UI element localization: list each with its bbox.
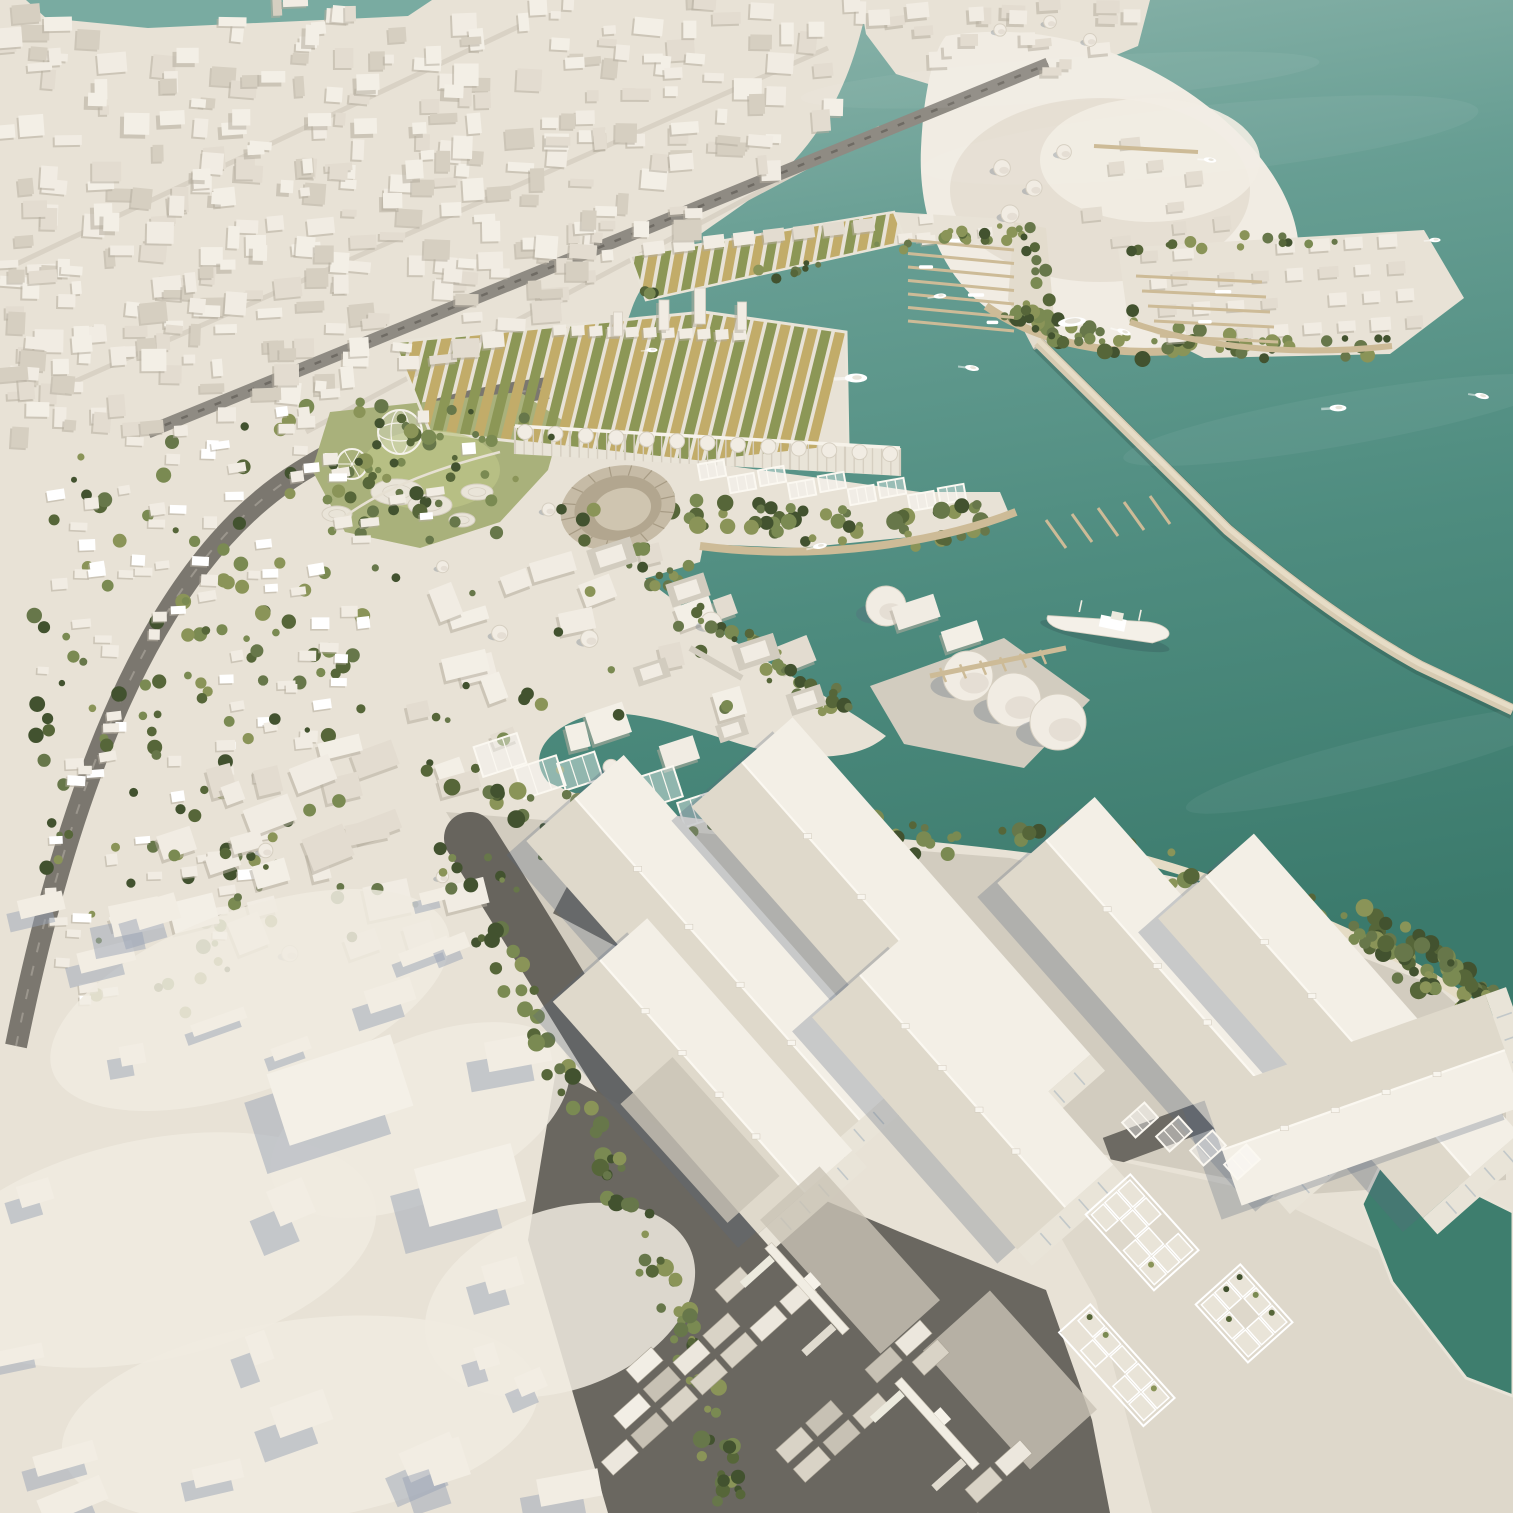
tree <box>512 476 518 482</box>
building-block <box>518 13 530 32</box>
building-block <box>335 48 354 68</box>
building-block <box>18 114 44 137</box>
tree <box>147 727 157 737</box>
building-block <box>589 326 603 337</box>
building-block <box>1098 15 1118 24</box>
tree <box>509 782 527 800</box>
tree <box>469 590 475 596</box>
building-block <box>1167 201 1184 212</box>
tree <box>1084 333 1095 344</box>
building-block <box>674 219 702 240</box>
tree <box>639 1254 652 1267</box>
building-block <box>219 674 233 683</box>
tree <box>1392 972 1403 983</box>
building-block <box>72 335 93 353</box>
silo <box>670 434 685 449</box>
tank-shading <box>998 29 1005 34</box>
tree <box>485 494 497 506</box>
building-block <box>140 420 164 435</box>
building-block <box>64 420 76 431</box>
building-block <box>200 383 224 392</box>
building-block <box>671 121 699 135</box>
building-block <box>353 535 371 543</box>
building-block <box>23 200 47 217</box>
tree <box>499 877 505 883</box>
building-block <box>697 329 711 340</box>
tree <box>345 491 357 503</box>
tree <box>200 786 208 794</box>
tree <box>697 1451 707 1461</box>
building-block <box>421 99 439 113</box>
building-block <box>49 836 63 844</box>
tree <box>593 1116 609 1132</box>
tree <box>507 945 520 958</box>
tree <box>197 693 208 704</box>
building-block <box>1042 67 1061 75</box>
tree <box>444 779 461 796</box>
building-block <box>153 612 167 622</box>
tree <box>154 711 162 719</box>
building-block <box>634 221 650 237</box>
building-block <box>92 162 121 182</box>
tree <box>656 1303 666 1313</box>
building-block <box>571 325 585 336</box>
building-block <box>160 79 177 94</box>
roof-vent <box>641 1008 649 1013</box>
roof-vent <box>685 924 693 929</box>
tree <box>490 962 502 974</box>
tree <box>585 586 596 597</box>
building-block <box>148 519 165 527</box>
building-block <box>257 307 282 318</box>
tree <box>781 514 797 530</box>
tree <box>723 1440 736 1453</box>
scene-canvas <box>0 0 1513 1513</box>
tree <box>736 1489 746 1499</box>
tree <box>515 957 530 972</box>
tree <box>436 433 444 441</box>
tree <box>498 985 511 998</box>
tree <box>1021 305 1031 315</box>
building-block <box>603 25 616 34</box>
tree <box>332 794 346 808</box>
tree <box>1259 353 1269 363</box>
tree <box>636 1269 644 1277</box>
building-block <box>25 336 48 350</box>
building-block <box>542 118 558 129</box>
tree <box>1032 325 1040 333</box>
building-block <box>219 17 247 27</box>
roof-vent <box>1203 1020 1211 1025</box>
tree <box>129 788 138 797</box>
tree <box>54 855 63 864</box>
tank-shading <box>1088 39 1095 44</box>
tree <box>404 424 419 439</box>
tree <box>1321 335 1332 346</box>
tree <box>79 658 87 666</box>
tree <box>1374 334 1382 342</box>
moored-yacht <box>968 293 984 297</box>
tree <box>140 679 151 690</box>
tree <box>139 712 148 721</box>
building-block <box>176 48 198 63</box>
tree <box>189 536 200 547</box>
building-block <box>135 836 150 844</box>
tree <box>59 680 65 686</box>
building-block <box>463 312 483 322</box>
building-block <box>218 407 236 421</box>
building-block <box>350 234 377 248</box>
tree <box>397 414 407 424</box>
building-block <box>461 36 481 45</box>
tree <box>645 1209 655 1219</box>
building-block <box>530 168 545 191</box>
building-block <box>102 645 119 657</box>
building-block <box>72 618 91 628</box>
building-block <box>521 194 539 205</box>
building-block <box>184 272 197 293</box>
tree <box>566 1101 580 1115</box>
tree <box>602 1191 610 1199</box>
tree <box>27 608 42 623</box>
building-block <box>625 327 639 338</box>
tree <box>243 733 254 744</box>
building-block <box>444 84 464 98</box>
building-block <box>135 567 153 575</box>
tree <box>263 864 269 870</box>
building-block <box>1096 0 1120 13</box>
tree <box>689 517 706 534</box>
open-frame-building <box>728 473 756 493</box>
building-block <box>160 110 186 125</box>
building-block <box>475 92 491 108</box>
building-block <box>1397 288 1414 301</box>
tank-shading <box>1062 151 1071 157</box>
building-block <box>290 470 304 482</box>
tree <box>698 618 704 624</box>
building-block <box>478 251 503 269</box>
building-block <box>1112 235 1132 247</box>
tree <box>1400 921 1411 932</box>
tree <box>584 1101 599 1116</box>
building-block <box>204 516 217 528</box>
tree <box>421 765 433 777</box>
tree <box>690 494 704 508</box>
roof-vent <box>787 1040 795 1045</box>
moored-yacht <box>987 321 999 325</box>
building-block <box>679 328 693 339</box>
building-block <box>551 37 570 50</box>
tree <box>1332 239 1338 245</box>
tree <box>947 834 956 843</box>
building-block <box>184 354 196 363</box>
building-block <box>345 6 356 22</box>
building-block <box>1123 9 1140 22</box>
tree <box>1039 264 1052 277</box>
tree <box>667 567 674 574</box>
building-block <box>256 539 273 549</box>
tree <box>367 505 379 517</box>
building-block <box>124 113 150 135</box>
tree <box>224 716 235 727</box>
tree <box>181 628 194 641</box>
tree <box>97 492 112 507</box>
building-block <box>190 324 201 346</box>
building-block <box>72 913 91 922</box>
tree <box>711 1408 721 1418</box>
tree <box>241 422 249 430</box>
roof-vent <box>1331 1107 1339 1112</box>
building-block <box>312 617 330 629</box>
tree <box>1394 943 1413 962</box>
roof-vent <box>1153 963 1161 968</box>
building-block <box>566 261 589 280</box>
building-block <box>868 9 890 26</box>
tree <box>484 853 492 861</box>
tree <box>756 505 765 514</box>
building-block <box>227 226 240 249</box>
building-block <box>602 249 614 261</box>
building-block <box>106 711 122 721</box>
tree <box>432 713 441 722</box>
tree <box>221 576 235 590</box>
building-block <box>396 209 422 227</box>
tree <box>217 624 228 635</box>
building-block <box>61 265 83 275</box>
tree <box>844 703 852 711</box>
building-block <box>341 606 357 617</box>
tree <box>175 804 185 814</box>
building-block <box>399 356 419 370</box>
tree <box>720 519 735 534</box>
building-block <box>388 27 406 43</box>
building-block <box>76 29 100 50</box>
roof-vent <box>715 1092 723 1097</box>
tree <box>1196 243 1207 254</box>
building-block <box>84 497 99 510</box>
tree <box>468 409 474 415</box>
tree <box>372 440 381 449</box>
tree <box>434 842 447 855</box>
tree <box>490 526 503 539</box>
tree <box>481 470 490 479</box>
building-block <box>565 57 585 69</box>
tree <box>565 1068 582 1085</box>
tree <box>1167 848 1175 856</box>
tree <box>356 398 365 407</box>
roof-vent <box>857 894 865 899</box>
tree <box>669 1273 683 1287</box>
tree <box>519 413 530 424</box>
building-block <box>216 740 235 751</box>
silo <box>609 430 624 445</box>
silo <box>518 425 533 440</box>
tree <box>693 1431 711 1449</box>
tree <box>1341 912 1348 919</box>
tree <box>168 850 180 862</box>
tree <box>38 621 50 633</box>
building-block <box>110 346 127 366</box>
building-block <box>225 492 244 501</box>
tree <box>156 468 171 483</box>
tree <box>285 488 296 499</box>
tree <box>674 1323 689 1338</box>
building-block <box>103 723 119 732</box>
building-block <box>1371 317 1392 331</box>
building-block <box>286 684 298 693</box>
building-block <box>0 27 23 49</box>
building-block <box>421 150 435 160</box>
tree <box>28 728 43 743</box>
tree <box>562 790 572 800</box>
roof-vent <box>938 1065 946 1070</box>
tree <box>786 503 796 513</box>
tree <box>838 505 847 514</box>
tree <box>1031 267 1039 275</box>
building-block <box>331 678 347 686</box>
building-block <box>335 113 346 126</box>
tree <box>527 794 535 802</box>
roof-vent <box>1382 1089 1390 1094</box>
tree <box>1420 981 1432 993</box>
building-block <box>595 206 617 216</box>
tree <box>1013 305 1022 314</box>
building-block <box>193 169 210 180</box>
building-block <box>299 650 316 661</box>
building-block <box>294 446 308 455</box>
tree <box>764 501 777 514</box>
roof-vent <box>1103 907 1111 912</box>
building-block <box>1388 261 1406 274</box>
tree <box>1016 225 1023 232</box>
tree <box>484 932 500 948</box>
building-block <box>593 127 608 150</box>
tree <box>731 1470 745 1484</box>
building-block <box>436 151 450 172</box>
building-block <box>793 224 815 239</box>
tree <box>558 1089 566 1097</box>
silo <box>852 445 867 460</box>
tree <box>71 477 77 483</box>
building-block <box>212 359 223 377</box>
open-frame-building <box>878 478 906 498</box>
building-block <box>823 221 845 236</box>
tree <box>1447 959 1454 966</box>
tree <box>673 621 684 632</box>
building-block <box>1142 250 1159 261</box>
building-block <box>944 44 955 57</box>
building-block <box>165 324 183 333</box>
building-block <box>370 51 385 70</box>
building-block <box>153 145 164 162</box>
building-block <box>462 442 476 455</box>
building-block <box>141 349 166 372</box>
tree <box>1342 335 1349 342</box>
building-block <box>491 268 510 278</box>
roof-vent <box>1280 1125 1288 1130</box>
building-block <box>88 93 107 107</box>
building-block <box>717 109 728 124</box>
tank-shading <box>546 509 554 514</box>
tree <box>530 986 539 995</box>
building-block <box>265 584 278 592</box>
building-block <box>67 929 81 937</box>
tree <box>613 1152 627 1166</box>
tree <box>479 436 486 443</box>
tree <box>683 560 695 572</box>
tree <box>712 1496 723 1507</box>
tank-shading <box>1007 213 1017 221</box>
tree <box>372 564 379 571</box>
building-block <box>563 0 575 10</box>
building-block <box>0 124 16 139</box>
tree <box>111 843 120 852</box>
building-block <box>307 217 335 236</box>
building-block <box>274 277 303 299</box>
tree <box>528 1034 545 1051</box>
tank-shading <box>441 566 448 571</box>
building-block <box>683 21 696 39</box>
tree <box>1025 222 1036 233</box>
roof-vent <box>678 1050 686 1055</box>
tree <box>1095 327 1104 336</box>
building-block <box>1174 248 1194 260</box>
building-block <box>535 235 559 260</box>
tree <box>704 1406 711 1413</box>
building-block <box>1009 10 1027 24</box>
tree <box>355 458 363 466</box>
tree <box>126 879 135 888</box>
tree <box>111 686 127 702</box>
boat-cabin <box>852 375 862 379</box>
building-block <box>147 222 174 244</box>
tree <box>62 633 70 641</box>
building-block <box>97 52 127 74</box>
building-block <box>452 338 480 358</box>
tree <box>1383 335 1391 343</box>
tree <box>997 223 1003 229</box>
tree <box>721 700 733 712</box>
building-block <box>781 22 794 44</box>
tree <box>100 739 113 752</box>
roof-vent <box>804 834 812 839</box>
tree <box>517 1001 533 1017</box>
tree <box>282 614 296 628</box>
building-block <box>813 63 833 78</box>
tree <box>843 520 856 533</box>
tree <box>452 455 458 461</box>
tree <box>353 406 365 418</box>
building-block <box>320 388 340 398</box>
building-block <box>300 187 310 196</box>
building-block <box>125 326 148 337</box>
tree <box>745 629 754 638</box>
moored-yacht <box>1215 290 1231 294</box>
tree <box>1409 967 1419 977</box>
building-block <box>615 44 630 60</box>
building-block <box>713 12 741 25</box>
building-block <box>576 110 595 124</box>
silo <box>822 443 837 458</box>
building-block <box>315 245 334 262</box>
tree <box>1168 239 1178 249</box>
building-block <box>294 338 314 357</box>
tree <box>998 827 1006 835</box>
building-block <box>516 68 542 91</box>
building-block <box>279 348 296 360</box>
building-block <box>812 109 831 132</box>
building-block <box>914 25 934 36</box>
